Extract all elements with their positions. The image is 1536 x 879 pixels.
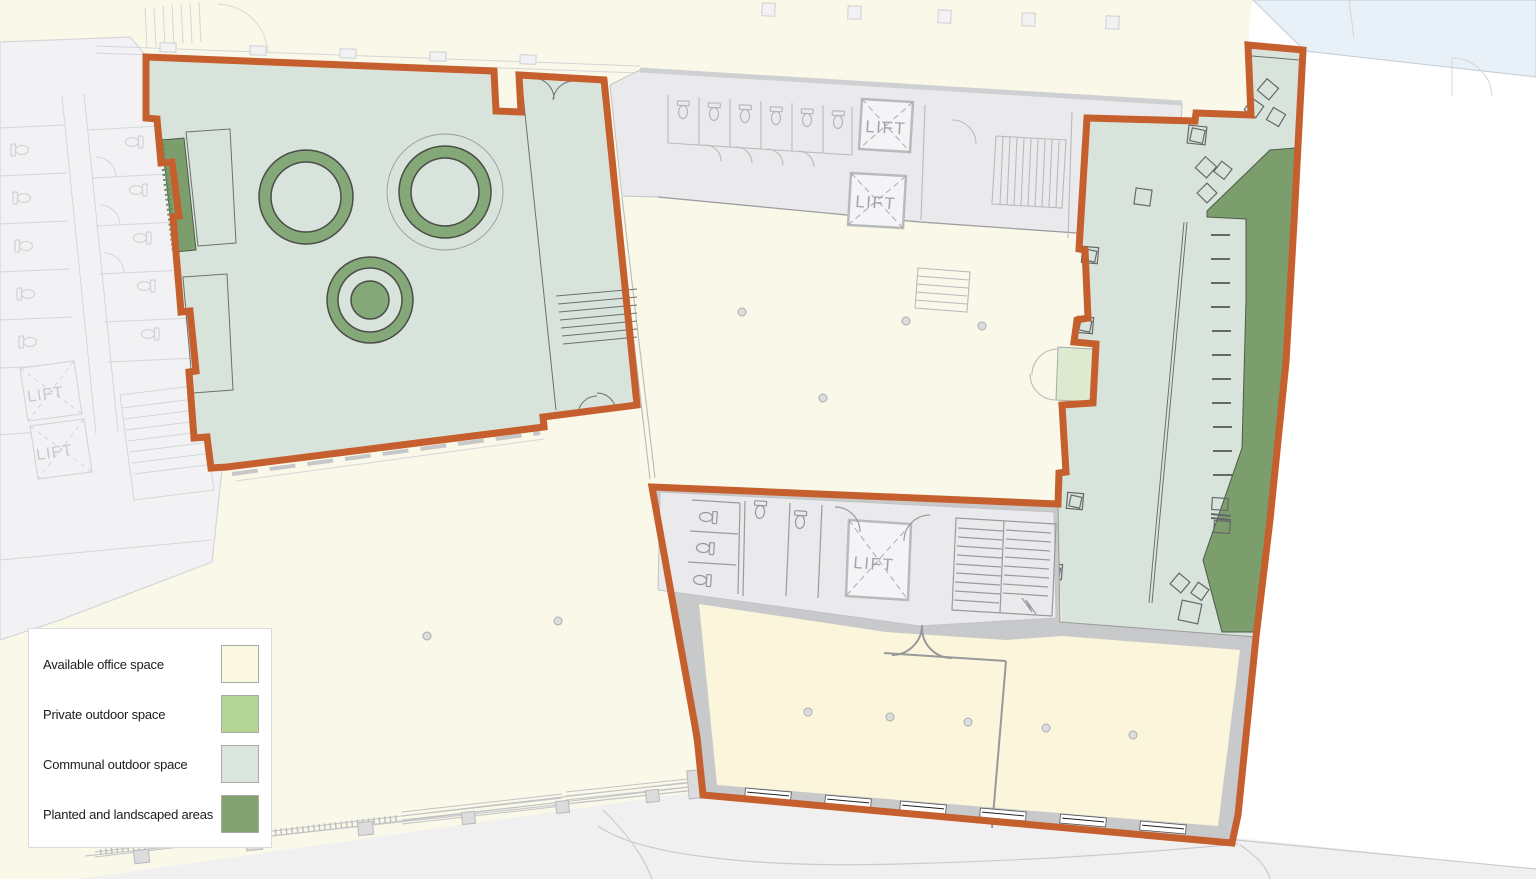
column-dot	[978, 322, 986, 330]
lift-label: LIFT	[855, 192, 897, 213]
lift-shaft-building: LIFT	[846, 520, 911, 600]
legend-item-private-outdoor-space: Private outdoor space	[43, 689, 259, 739]
legend-label: Available office space	[43, 657, 221, 672]
lift-label: LIFT	[865, 117, 907, 138]
legend-label: Private outdoor space	[43, 707, 221, 722]
legend-item-communal-outdoor-space: Communal outdoor space	[43, 739, 259, 789]
legend-label: Planted and landscaped areas	[43, 807, 221, 822]
rooflight	[848, 6, 862, 20]
lift-shaft-left-1: LIFT	[20, 361, 82, 421]
legend-swatch-available-office-space	[221, 645, 259, 683]
lift-shaft-left-2: LIFT	[30, 419, 92, 479]
floor-plan-page: LIFT LIFT	[0, 0, 1536, 879]
legend-item-available-office-space: Available office space	[43, 639, 259, 689]
column-dot	[804, 708, 812, 716]
lift-label: LIFT	[853, 553, 895, 575]
legend: Available office space Private outdoor s…	[28, 628, 272, 848]
rooflight	[762, 3, 776, 17]
column-dot	[1042, 724, 1050, 732]
legend-item-planted-and-landscaped-areas: Planted and landscaped areas	[43, 789, 259, 839]
rooflight	[938, 10, 952, 24]
column-dot	[819, 394, 827, 402]
column-dot	[886, 713, 894, 721]
legend-swatch-communal-outdoor-space	[221, 745, 259, 783]
private-outdoor-space	[1056, 347, 1094, 402]
legend-label: Communal outdoor space	[43, 757, 221, 772]
column-dot	[902, 317, 910, 325]
column-dot	[423, 632, 431, 640]
legend-swatch-private-outdoor-space	[221, 695, 259, 733]
column-dot	[1129, 731, 1137, 739]
rooflight	[1022, 13, 1036, 27]
rooflight	[1106, 16, 1120, 30]
column-dot	[738, 308, 746, 316]
lift-shaft-central-1: LIFT	[859, 99, 913, 152]
column-dot	[964, 718, 972, 726]
column-dot	[554, 617, 562, 625]
lift-shaft-central-2: LIFT	[848, 173, 906, 228]
legend-swatch-planted-and-landscaped-areas	[221, 795, 259, 833]
